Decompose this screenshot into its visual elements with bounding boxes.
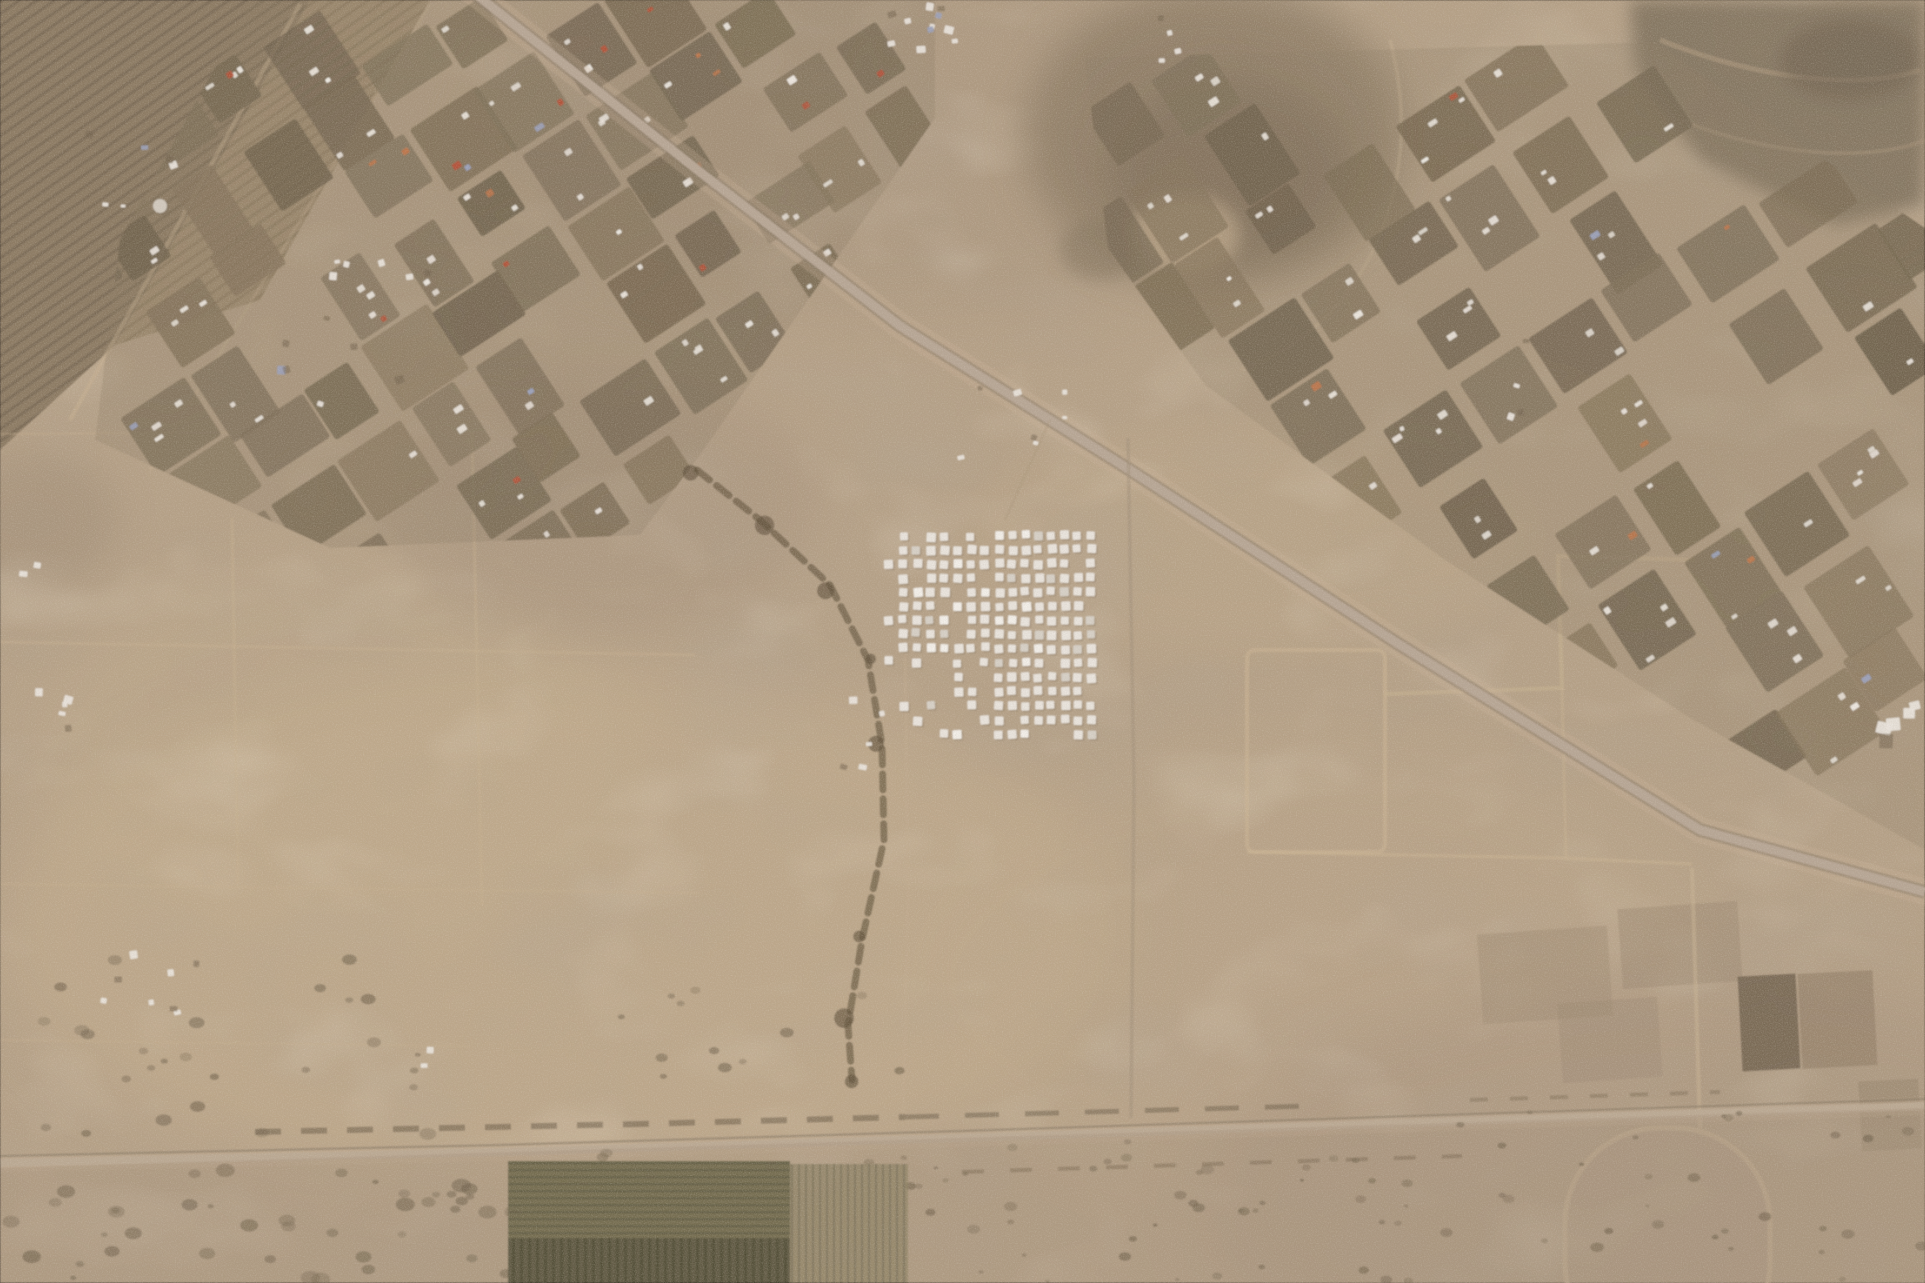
satellite-image-viewport [0, 0, 1925, 1283]
satellite-scene [0, 0, 1925, 1283]
noise-grain-overlay [0, 0, 1925, 1283]
film-grain-light [0, 0, 1925, 1283]
